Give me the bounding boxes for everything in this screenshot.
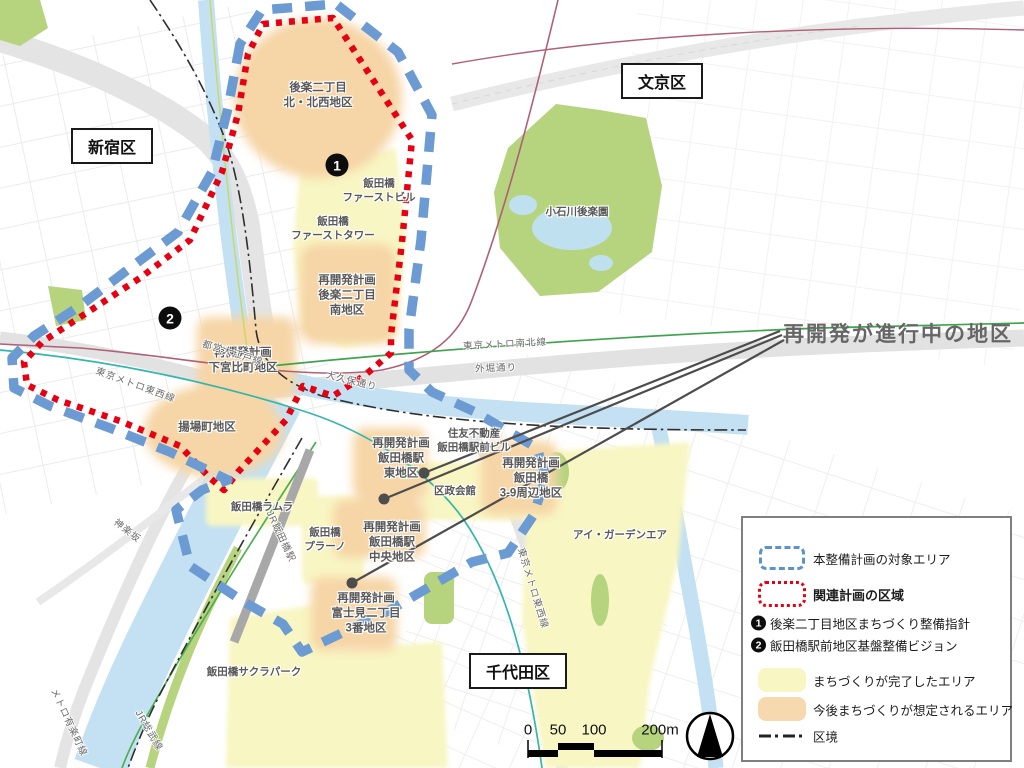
legend-item: 今後まちづくりが想定されるエリア [751,697,1013,721]
plan-area-swatch [759,546,805,570]
legend-item: 2飯田橋駅前地区基盤整備ビジョン [751,636,958,655]
legend-marker-icon: 1 [751,616,766,631]
legend-item: 区境 [751,727,838,746]
legend-item-label: まちづくりが完了したエリア [813,671,976,690]
legend-swatch-cell [751,697,813,721]
legend-swatch-cell [751,546,813,570]
legend-item-label: 今後まちづくりが想定されるエリア [813,700,1013,719]
legend-marker-icon: 2 [751,638,766,653]
legend-item: 関連計画の区域 [751,581,904,607]
planning-map-figure: 新宿区文京区千代田区12後楽二丁目 北・北西地区飯田橋 ファーストビル飯田橋 フ… [0,0,1024,768]
legend-item-label: 区境 [813,727,838,746]
legend-item-label: 後楽二丁目地区まちづくり整備指針 [770,614,970,633]
legend-item-label: 本整備計画の対象エリア [813,549,951,568]
related-area-swatch [758,581,806,607]
ward-boundary-swatch [759,735,805,738]
legend-item: 本整備計画の対象エリア [751,546,951,570]
legend-item: まちづくりが完了したエリア [751,668,976,692]
legend-item-label: 関連計画の区域 [813,585,904,604]
legend-swatch-cell [751,735,813,738]
north-arrow-icon [687,713,733,759]
legend-swatch-cell [751,581,813,607]
completed-area-swatch [758,668,806,692]
legend-item: 1後楽二丁目地区まちづくり整備指針 [751,614,970,633]
legend-swatch-cell [751,668,813,692]
future-area-swatch [758,697,806,721]
legend-item-label: 飯田橋駅前地区基盤整備ビジョン [770,636,958,655]
legend: 本整備計画の対象エリア関連計画の区域1後楽二丁目地区まちづくり整備指針2飯田橋駅… [741,516,1012,762]
annotation-redevelopment-in-progress: 再開発が進行中の地区 [783,318,1013,348]
